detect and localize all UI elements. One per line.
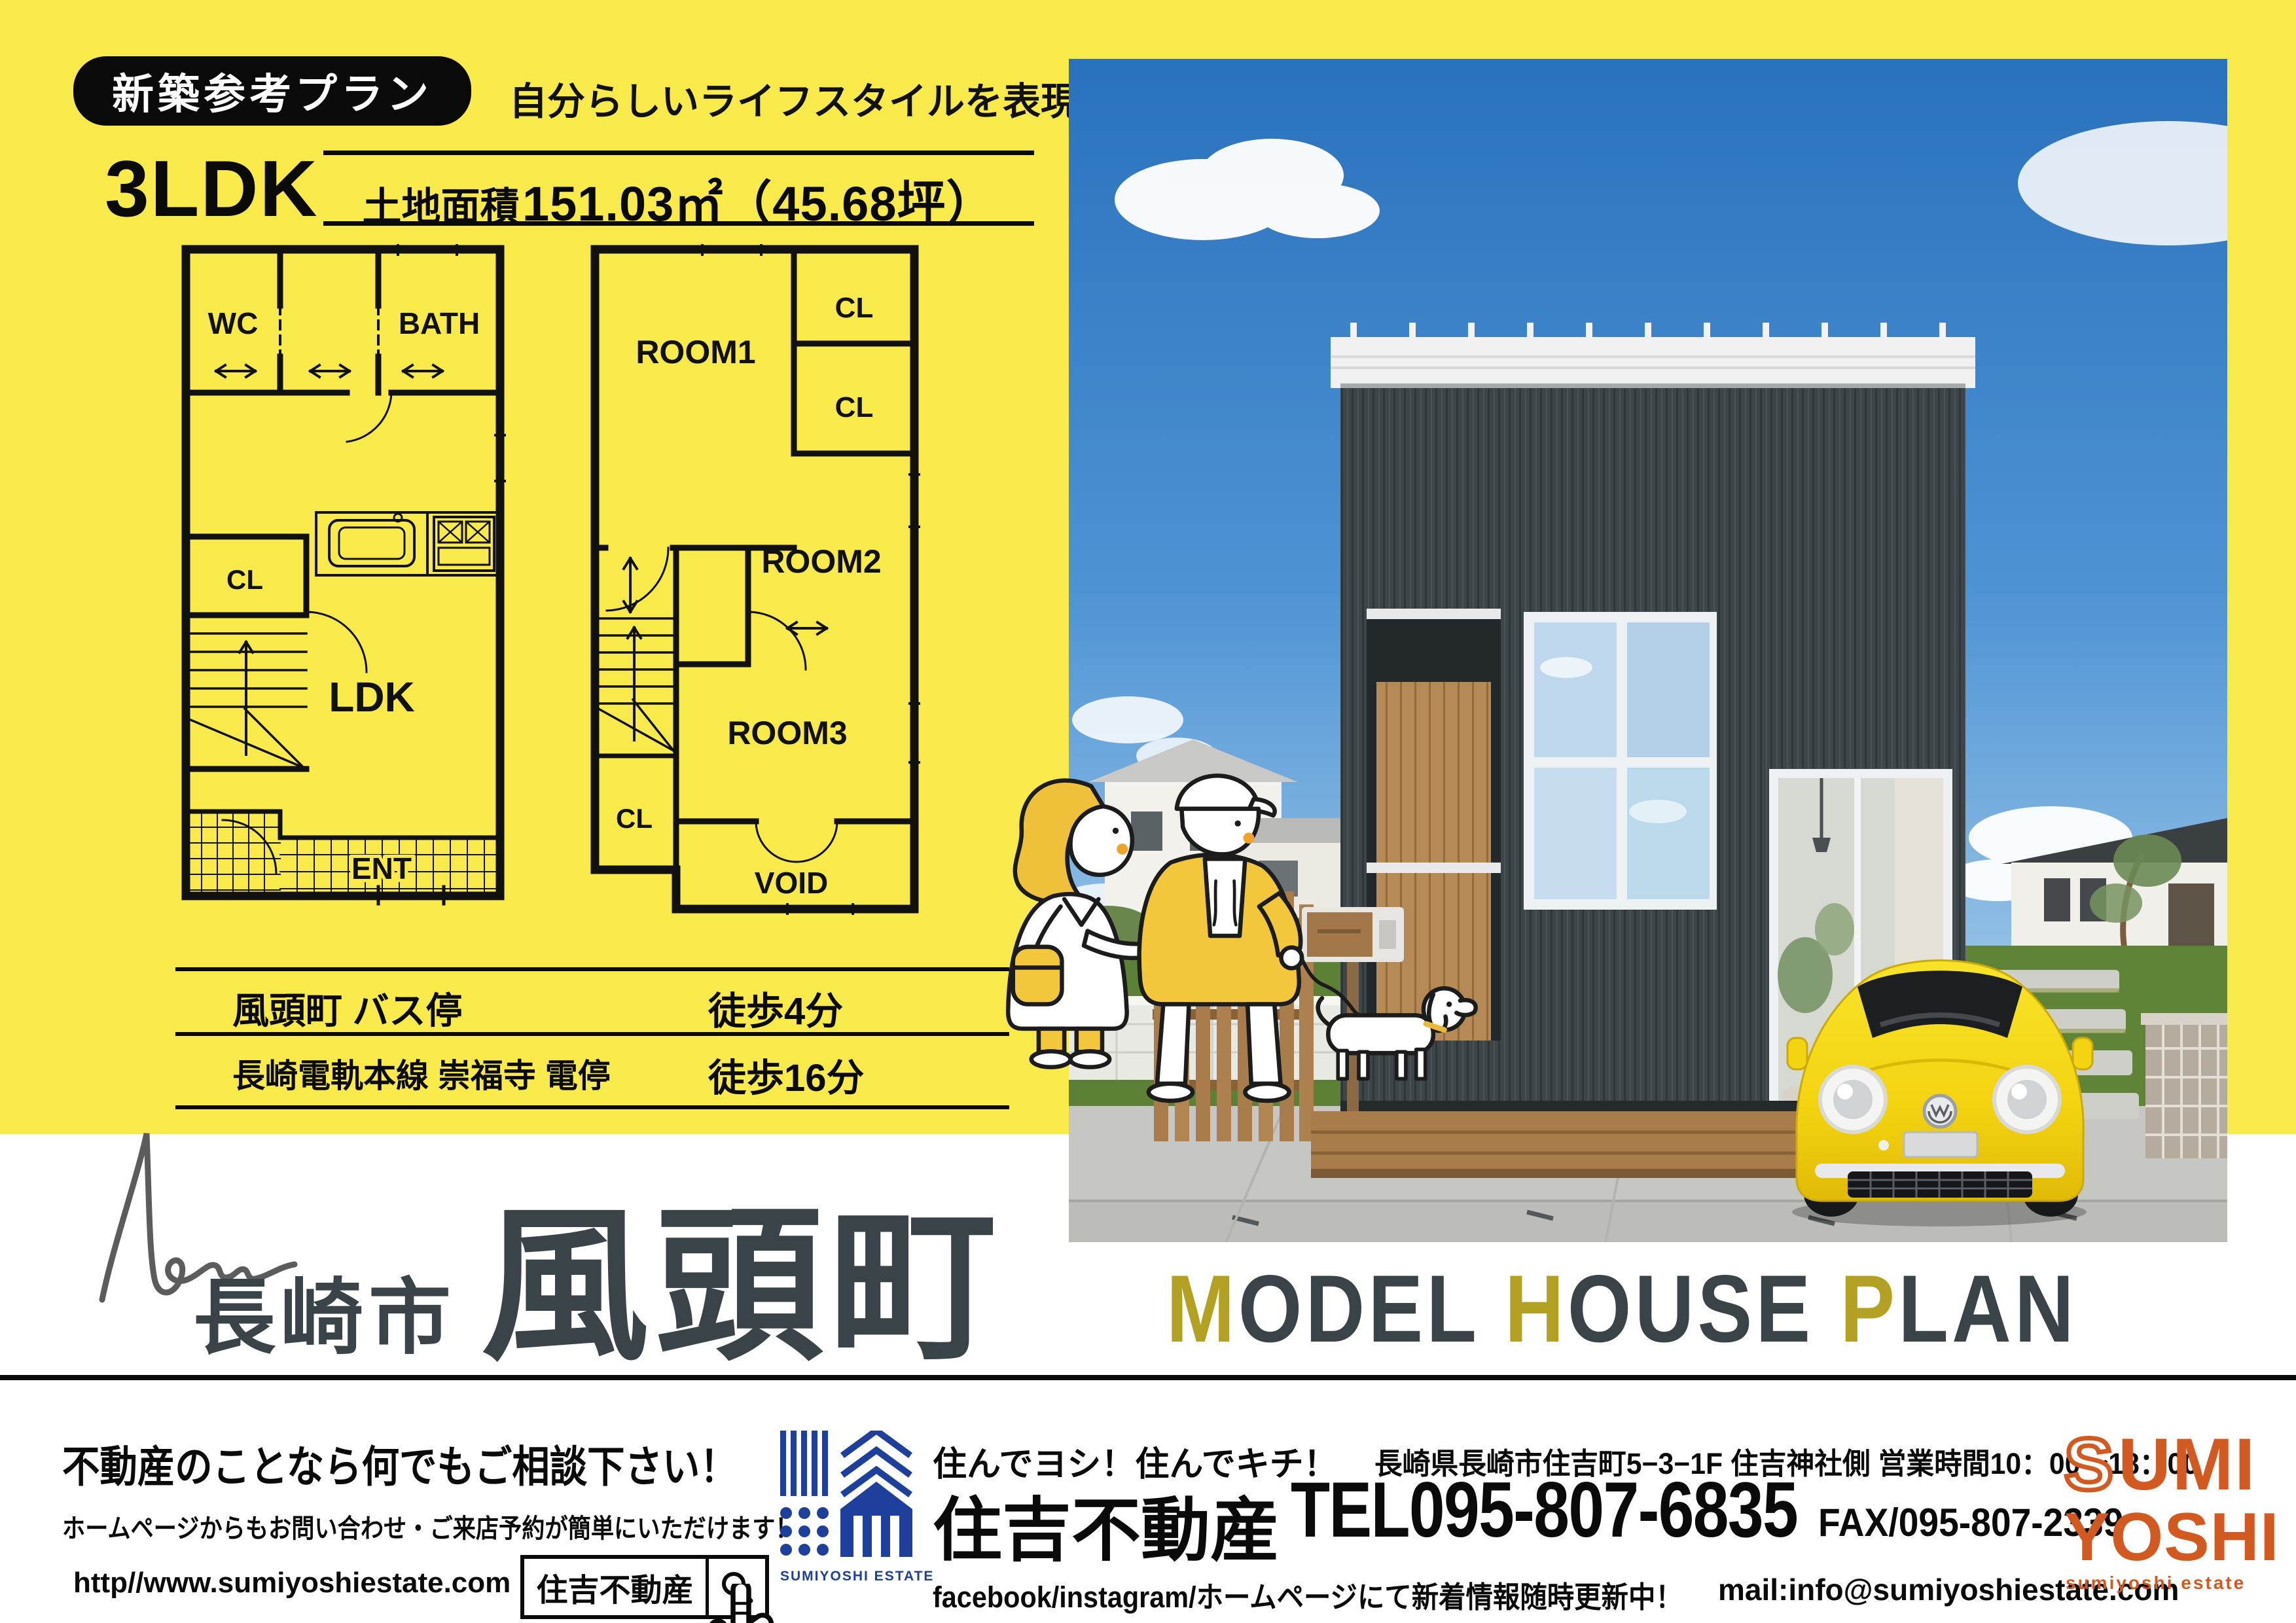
access-rule-1 [175,967,1009,971]
flyer-page: 新築参考プラン 自分らしいライフスタイルを表現 3LDK 土地面積 151.03… [0,0,2296,1623]
mhp-lan: LAN [1898,1255,2077,1362]
hero-town: 風頭町 [481,1203,1003,1370]
mhp-letter-h: H [1505,1255,1568,1362]
room-label-ent: ENT [351,851,412,885]
sumiyoshi-brand-logo: S UMI YOSHI sumiyoshi estate [2063,1427,2292,1597]
access-row1-walk: 徒歩4分 [708,980,843,1035]
footer-tel: TEL095-807-6835 [1291,1465,1797,1555]
search-box-label: 住吉不動産 [524,1564,706,1610]
tagline-text: 自分らしいライフスタイルを表現 [509,71,1079,126]
footer-note: ホームページからもお問い合わせ・ご来店予約が簡単にいただけます！ [62,1507,798,1545]
brand-letter-s: S [2064,1427,2115,1505]
floor-plan-1f: WC BATH CL LDK ENT [182,245,504,926]
brand-yoshi: YOSHI [2064,1499,2280,1575]
brand-caption: sumiyoshi estate [2066,1573,2246,1593]
sumiyoshi-estate-logo-icon [780,1431,914,1561]
sumiyoshi-estate-logo-caption: SUMIYOSHI ESTATE [780,1569,918,1584]
room-label-cl-1f: CL [226,564,263,595]
room-label-cl-a: CL [835,292,874,324]
footer-company-name: 住吉不動産 [933,1474,1280,1575]
footer-consult: 不動産のことなら何でもご相談下さい！ [62,1432,738,1495]
plan-type-badge: 新築参考プラン [73,56,471,126]
room-label-void: VOID [755,866,828,900]
hand-cursor-icon [704,1584,782,1623]
access-row1-name: 風頭町 バス停 [232,982,463,1035]
plan-type-badge-label: 新築参考プラン [112,61,433,121]
layout-3ldk: 3LDK [105,143,319,234]
brand-umi: UMI [2118,1427,2256,1505]
footer-separator [0,1375,2296,1380]
access-row2-walk: 徒歩16分 [708,1047,865,1102]
room-label-ldk: LDK [329,673,415,721]
area-rule-bottom [323,221,1034,226]
access-rule-2 [175,1032,1009,1036]
dog-figure [1301,958,1475,1079]
mhp-odel: ODEL [1238,1255,1479,1362]
floor-plan-2f: ROOM1 CL CL ROOM2 ROOM3 CL VOID [591,245,918,926]
block-wall-right [2141,1013,2227,1158]
mhp-ouse: OUSE [1568,1255,1814,1362]
footer-sns-note: facebook/instagram/ホームページにて新着情報随時更新中！ [933,1573,1683,1616]
footer-url: http//www.sumiyoshiestate.com [73,1567,511,1599]
area-rule-top [323,151,1034,155]
illustrated-couple [942,753,1518,1119]
room-label-cl-b: CL [835,391,874,423]
upper-window [1524,612,1717,910]
room-label-cl-left: CL [616,803,653,834]
model-house-plan-title: MODEL HOUSE PLAN [1166,1254,2077,1364]
room-label-room2: ROOM2 [761,543,881,580]
room-label-room3: ROOM3 [727,715,847,751]
mhp-letter-m: M [1166,1255,1238,1362]
room-label-wc: WC [208,306,259,340]
sumiyoshi-estate-logo: SUMIYOSHI ESTATE [780,1431,918,1584]
room-label-room1: ROOM1 [636,334,755,370]
woman-figure [1008,781,1157,1067]
access-row2-name: 長崎電軌本線 崇福寺 電停 [232,1050,611,1097]
hero-city: 長崎市 [193,1251,456,1370]
man-figure [1139,776,1302,1101]
room-label-bath: BATH [399,306,480,340]
mhp-letter-p: P [1840,1255,1898,1362]
